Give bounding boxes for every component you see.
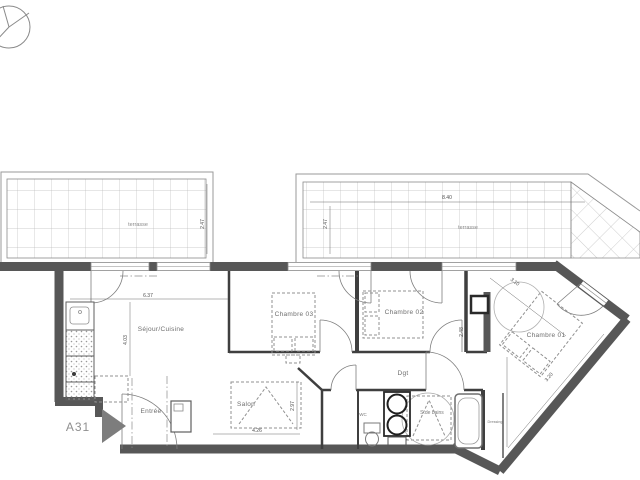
floor-plan-page: terrasse 2.47 8.40 terrasse 2.47 (0, 0, 640, 480)
terrace-left: terrasse 2.47 (1, 172, 213, 263)
terrace-right-decking-corner (571, 182, 640, 258)
dim-chambre01-side: 3.20 (544, 372, 555, 383)
terrace-right: 8.40 terrasse 2.47 (296, 174, 640, 262)
door-terrace-sejour (91, 271, 123, 303)
terrace-left-decking (7, 179, 206, 258)
window-sejour-left (91, 263, 149, 271)
dim-salon-width: 4.26 (252, 428, 262, 434)
room-label-sejour: Séjour/Cuisine (138, 326, 185, 333)
window-sejour-mid (157, 263, 210, 271)
north-compass-icon (0, 6, 30, 48)
door-chambre03 (320, 320, 352, 352)
dim-sejour-width: 6.37 (143, 293, 153, 299)
toilet (364, 423, 380, 446)
sheet-label: A31 (66, 420, 90, 434)
room-label-chambre02: Chambre 02 (385, 309, 424, 316)
cabinet-entree (171, 401, 191, 432)
room-labels: Séjour/Cuisine Chambre 03 Chambre 02 Cha… (138, 309, 566, 424)
terrace-left-depth-dim: 2.47 (200, 219, 206, 229)
room-label-salon: Salon (237, 401, 255, 408)
dimension-lines (70, 278, 604, 448)
dim-sejour-height: 4.03 (123, 335, 129, 345)
terrace-right-depth-dim: 2.47 (323, 219, 329, 229)
room-label-chambre03: Chambre 03 (275, 311, 314, 318)
door-entree (122, 394, 177, 449)
furniture (95, 291, 582, 440)
dim-chambre02-depth: 2.48 (459, 327, 465, 337)
floor-plan-drawing: terrasse 2.47 8.40 terrasse 2.47 (0, 0, 640, 480)
room-label-dressing: Dressing (488, 420, 503, 424)
bathtub (455, 394, 482, 448)
room-label-wc: WC (359, 412, 367, 417)
dim-chambre01-top: 3.10 (509, 277, 521, 288)
technical-shaft (471, 296, 488, 313)
washer-column (384, 392, 410, 446)
door-wc (331, 365, 356, 390)
terrace-right-label: terrasse (458, 225, 478, 231)
window-chambre03 (288, 263, 371, 271)
room-label-entree: Entrée (141, 408, 162, 415)
door-sdb (426, 352, 464, 390)
kitchen-counter (66, 302, 94, 400)
dim-salon-height: 2.97 (290, 401, 296, 411)
room-label-sdb: S.de bains (420, 410, 444, 416)
terrace-right-width-dim: 8.40 (442, 195, 452, 201)
shower-symbol (407, 396, 451, 440)
door-swings (91, 271, 604, 449)
room-label-chambre01: Chambre 01 (527, 332, 566, 339)
door-chambre02 (430, 320, 462, 352)
terrace-left-label: terrasse (128, 222, 148, 228)
window-diagonal (581, 284, 606, 303)
window-chambre02 (442, 263, 516, 271)
terrace-right-decking (303, 182, 571, 258)
chambre01-turning-circle (494, 282, 544, 332)
room-label-dgt: Dgt (397, 370, 408, 377)
door-terrace-chambre02 (410, 271, 442, 303)
